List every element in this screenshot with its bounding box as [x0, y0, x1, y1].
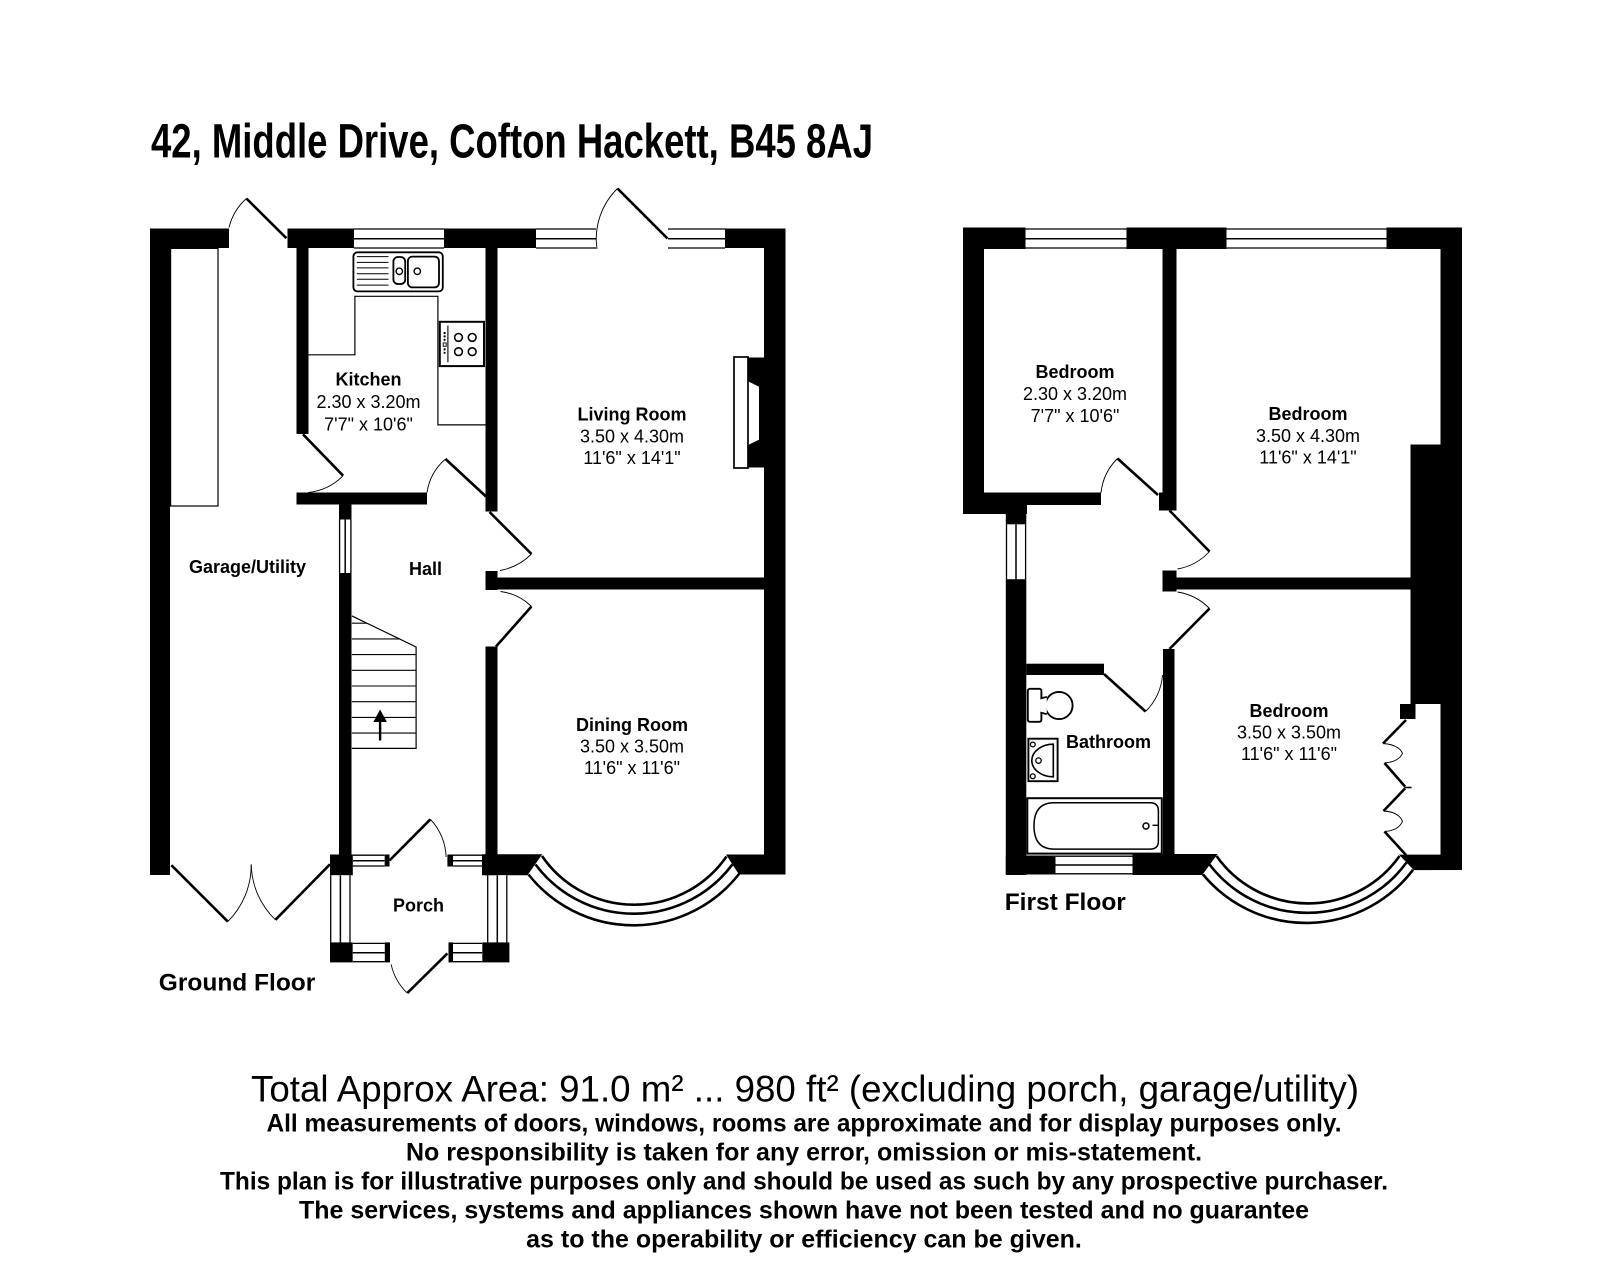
svg-text:Porch: Porch: [393, 896, 444, 916]
svg-text:Garage/Utility: Garage/Utility: [189, 557, 306, 577]
svg-text:as to the operability or effic: as to the operability or efficiency can …: [526, 1226, 1082, 1254]
svg-text:The services, systems and appl: The services, systems and appliances sho…: [299, 1197, 1309, 1225]
svg-text:2.30 x 3.20m: 2.30 x 3.20m: [316, 392, 420, 412]
svg-text:This plan is for illustrative: This plan is for illustrative purposes o…: [220, 1168, 1388, 1196]
svg-text:3.50 x 4.30m: 3.50 x 4.30m: [580, 427, 684, 447]
svg-text:3.50 x 3.50m: 3.50 x 3.50m: [580, 737, 684, 757]
svg-text:Bedroom: Bedroom: [1035, 362, 1114, 382]
svg-text:Dining Room: Dining Room: [576, 715, 688, 735]
svg-text:Hall: Hall: [409, 559, 442, 579]
svg-text:11'6" x 14'1": 11'6" x 14'1": [1259, 448, 1356, 468]
svg-text:3.50 x 3.50m: 3.50 x 3.50m: [1237, 723, 1341, 743]
svg-text:No responsibility is taken for: No responsibility is taken for any error…: [406, 1139, 1202, 1167]
svg-text:Bedroom: Bedroom: [1249, 701, 1328, 721]
svg-text:7'7" x 10'6": 7'7" x 10'6": [1031, 406, 1120, 426]
svg-text:Bathroom: Bathroom: [1066, 732, 1151, 752]
svg-text:All measurements of doors, win: All measurements of doors, windows, room…: [267, 1110, 1342, 1138]
svg-text:11'6" x 11'6": 11'6" x 11'6": [584, 758, 680, 778]
svg-text:42, Middle Drive, Cofton Hacke: 42, Middle Drive, Cofton Hackett, B45 8A…: [151, 116, 873, 169]
svg-text:Living Room: Living Room: [578, 405, 687, 425]
svg-text:Total Approx Area: 91.0 m² ...: Total Approx Area: 91.0 m² ... 980 ft² (…: [251, 1068, 1359, 1110]
svg-text:Kitchen: Kitchen: [335, 370, 401, 390]
svg-text:Bedroom: Bedroom: [1268, 404, 1347, 424]
svg-text:3.50 x 4.30m: 3.50 x 4.30m: [1256, 426, 1360, 446]
svg-text:7'7" x 10'6": 7'7" x 10'6": [324, 415, 413, 435]
svg-text:2.30 x 3.20m: 2.30 x 3.20m: [1023, 384, 1127, 404]
svg-text:Ground Floor: Ground Floor: [159, 970, 316, 997]
svg-text:11'6" x 11'6": 11'6" x 11'6": [1241, 744, 1337, 764]
svg-text:11'6" x 14'1": 11'6" x 14'1": [583, 448, 680, 468]
svg-text:First Floor: First Floor: [1005, 889, 1127, 916]
